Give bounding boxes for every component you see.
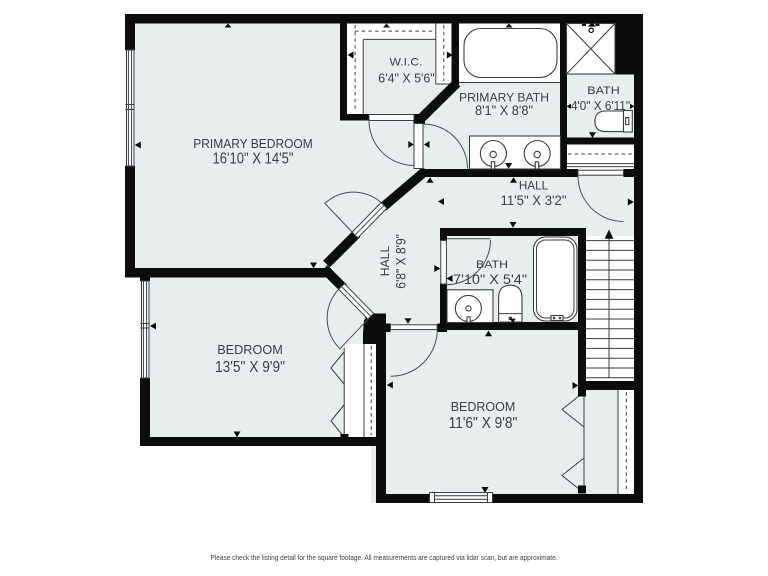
svg-text:PRIMARY BEDROOM: PRIMARY BEDROOM	[193, 136, 313, 151]
svg-text:8'1" X 8'8": 8'1" X 8'8"	[475, 102, 533, 118]
svg-text:6'4" X 5'6": 6'4" X 5'6"	[378, 71, 435, 86]
svg-text:W.I.C.: W.I.C.	[390, 57, 423, 69]
svg-text:11'5" X 3'2": 11'5" X 3'2"	[501, 192, 567, 208]
svg-text:7'10" X 5'4": 7'10" X 5'4"	[453, 271, 527, 287]
svg-text:4'0" X 6'11": 4'0" X 6'11"	[571, 98, 630, 113]
svg-text:BATH: BATH	[476, 259, 508, 271]
svg-text:Please check the listing detai: Please check the listing detail for the …	[211, 553, 558, 562]
svg-text:HALL: HALL	[519, 180, 549, 192]
svg-text:16'10" X 14'5": 16'10" X 14'5"	[213, 151, 294, 168]
svg-text:BEDROOM: BEDROOM	[217, 342, 283, 357]
svg-text:BEDROOM: BEDROOM	[451, 399, 516, 414]
svg-text:13'5" X 9'9": 13'5" X 9'9"	[215, 359, 285, 376]
svg-text:BATH: BATH	[587, 85, 620, 97]
svg-text:HALL: HALL	[380, 245, 392, 276]
svg-text:6'8" X 8'9": 6'8" X 8'9"	[393, 234, 409, 289]
svg-text:11'6" X 9'8": 11'6" X 9'8"	[449, 415, 518, 432]
